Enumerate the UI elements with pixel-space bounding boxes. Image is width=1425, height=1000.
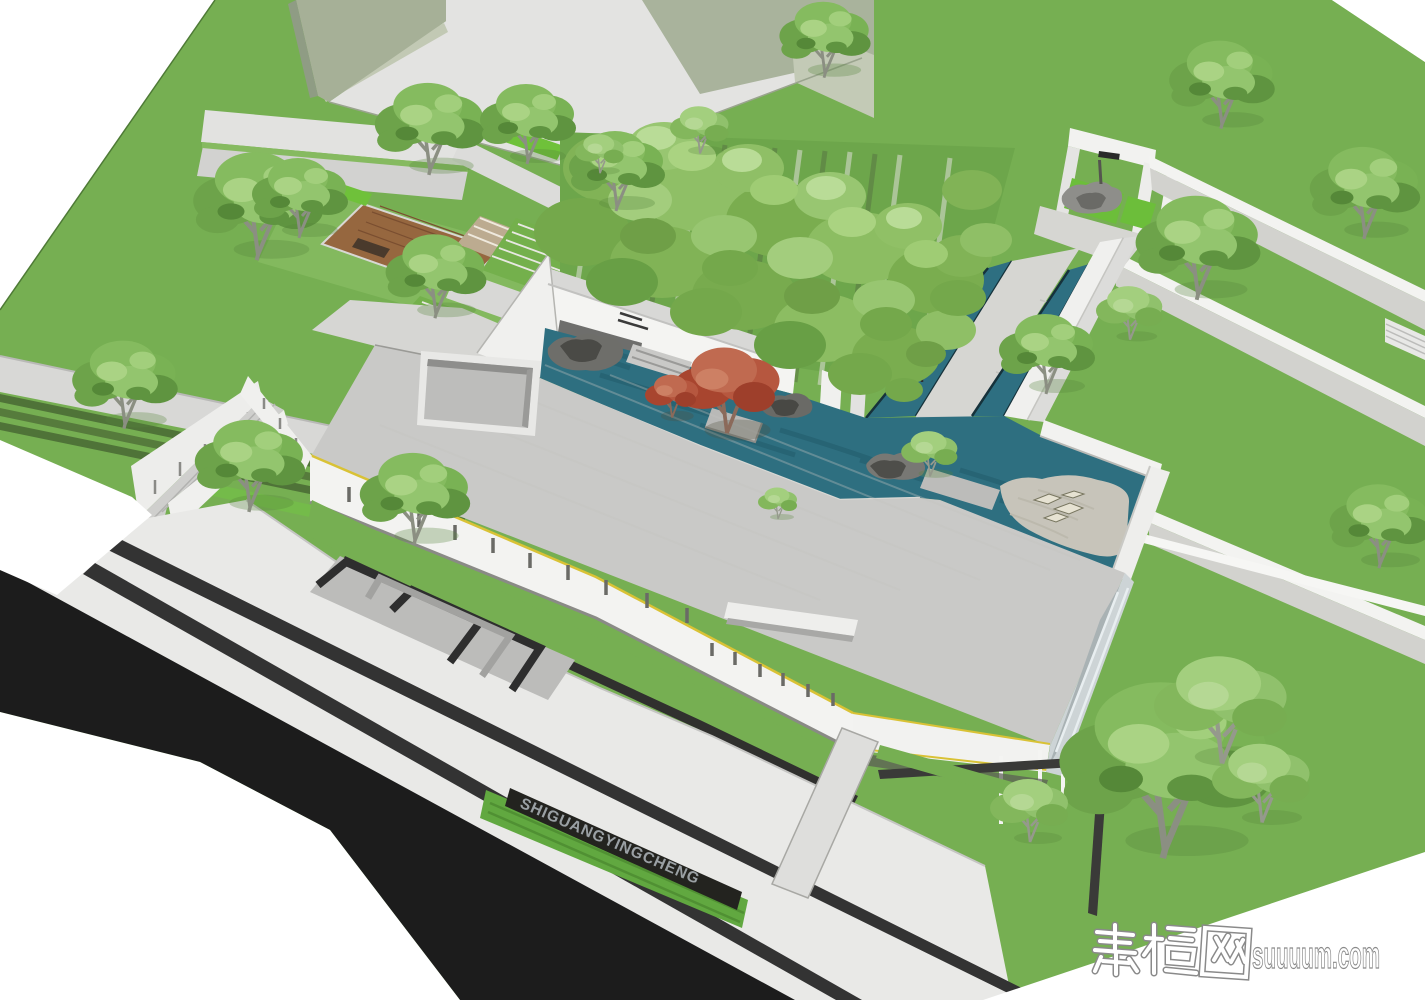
svg-text:suuuum.com: suuuum.com	[1252, 935, 1380, 977]
